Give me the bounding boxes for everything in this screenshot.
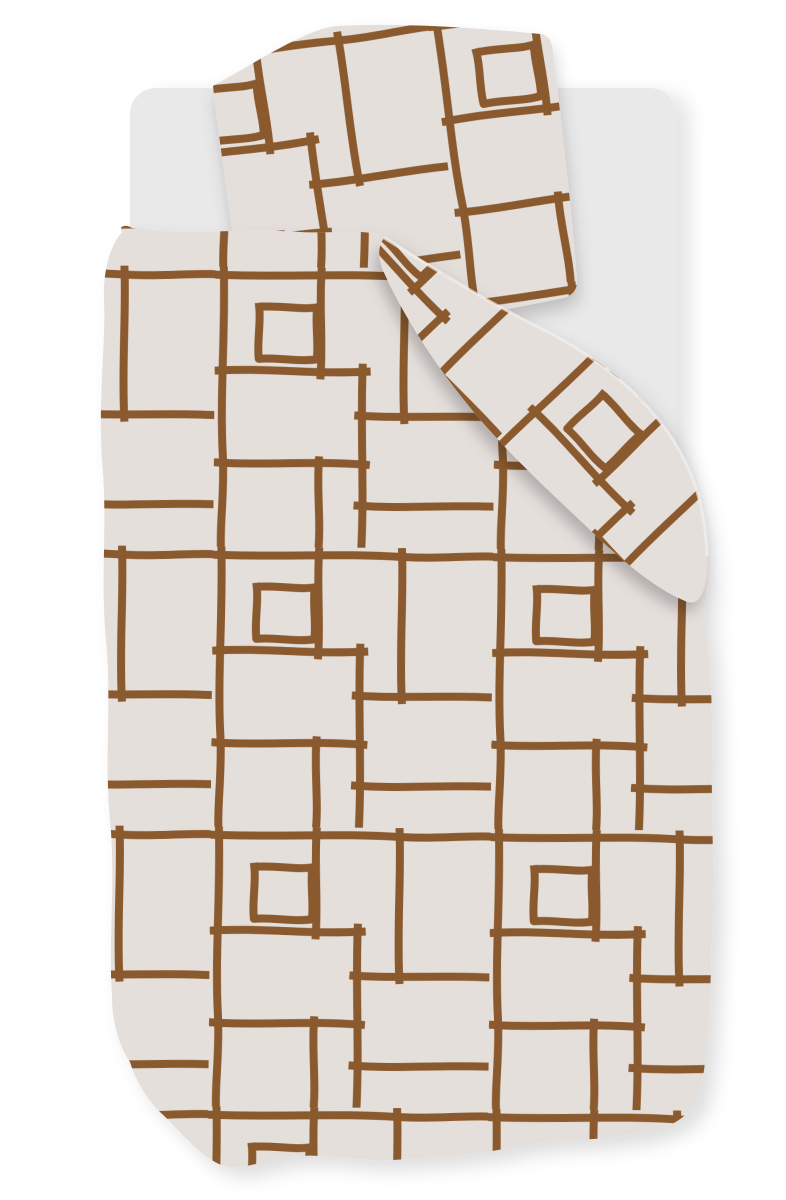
product-photo-stage [0,0,786,1200]
bedding-product-photo [0,0,786,1200]
